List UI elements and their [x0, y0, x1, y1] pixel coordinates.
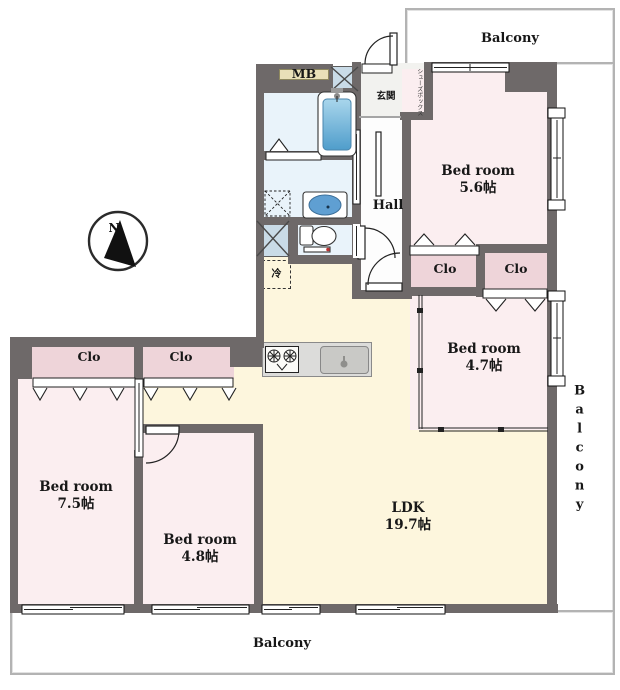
room-bedroom-c: [18, 345, 136, 606]
wall-segment: [254, 424, 263, 605]
floor-plan: 冷: [0, 0, 620, 690]
closet-b-label: Clo: [504, 261, 527, 277]
room-toilet: [295, 221, 357, 258]
wall-segment: [134, 337, 143, 387]
room-ldk-nook: [231, 365, 263, 385]
wall-segment: [256, 217, 358, 225]
balcony-bottom-label: Balcony: [253, 636, 311, 652]
compass-north-label: N: [109, 221, 120, 235]
wall-segment: [402, 287, 483, 296]
wall-segment: [230, 337, 262, 367]
wall-segment: [10, 604, 558, 613]
wall-segment: [288, 221, 298, 259]
closet-c-label: Clo: [77, 349, 100, 365]
wall-segment: [134, 450, 143, 605]
wall-segment: [288, 255, 358, 264]
closet-d-label: Clo: [169, 349, 192, 365]
bedroom-a-label: Bed room 5.6帖: [441, 163, 515, 197]
balcony-right-label: Balcony: [571, 384, 587, 517]
bedroom-d-label: Bed room 4.8帖: [163, 532, 237, 566]
wall-segment: [141, 424, 262, 433]
wall-segment: [264, 151, 356, 160]
wall-segment: [18, 346, 32, 379]
hall-label: Hall: [373, 198, 404, 214]
entrance-label: 玄関: [376, 91, 395, 103]
wall-segment: [10, 337, 18, 613]
room-washroom: [261, 158, 357, 220]
compass-icon: N: [89, 212, 147, 270]
kitchen-sink: [320, 346, 369, 374]
wall-segment: [478, 244, 547, 253]
balcony-right: [553, 62, 615, 675]
stove: [265, 346, 299, 373]
bedroom-b-label: Bed room 4.7帖: [447, 341, 521, 375]
room-bedroom-d: [142, 424, 256, 606]
shoe-box-label: シューズボックス: [414, 68, 422, 116]
refrigerator-box: 冷: [262, 260, 291, 289]
wall-segment: [547, 64, 557, 613]
closet-a-label: Clo: [433, 261, 456, 277]
bedroom-c-label: Bed room 7.5帖: [39, 479, 113, 513]
wall-segment: [256, 64, 264, 348]
balcony-top-label: Balcony: [481, 31, 539, 47]
meter-box-label: MB: [292, 66, 316, 82]
balcony-bottom: [10, 610, 615, 675]
room-ldk-passage: [134, 381, 264, 427]
ldk-label: LDK 19.7帖: [385, 500, 431, 534]
